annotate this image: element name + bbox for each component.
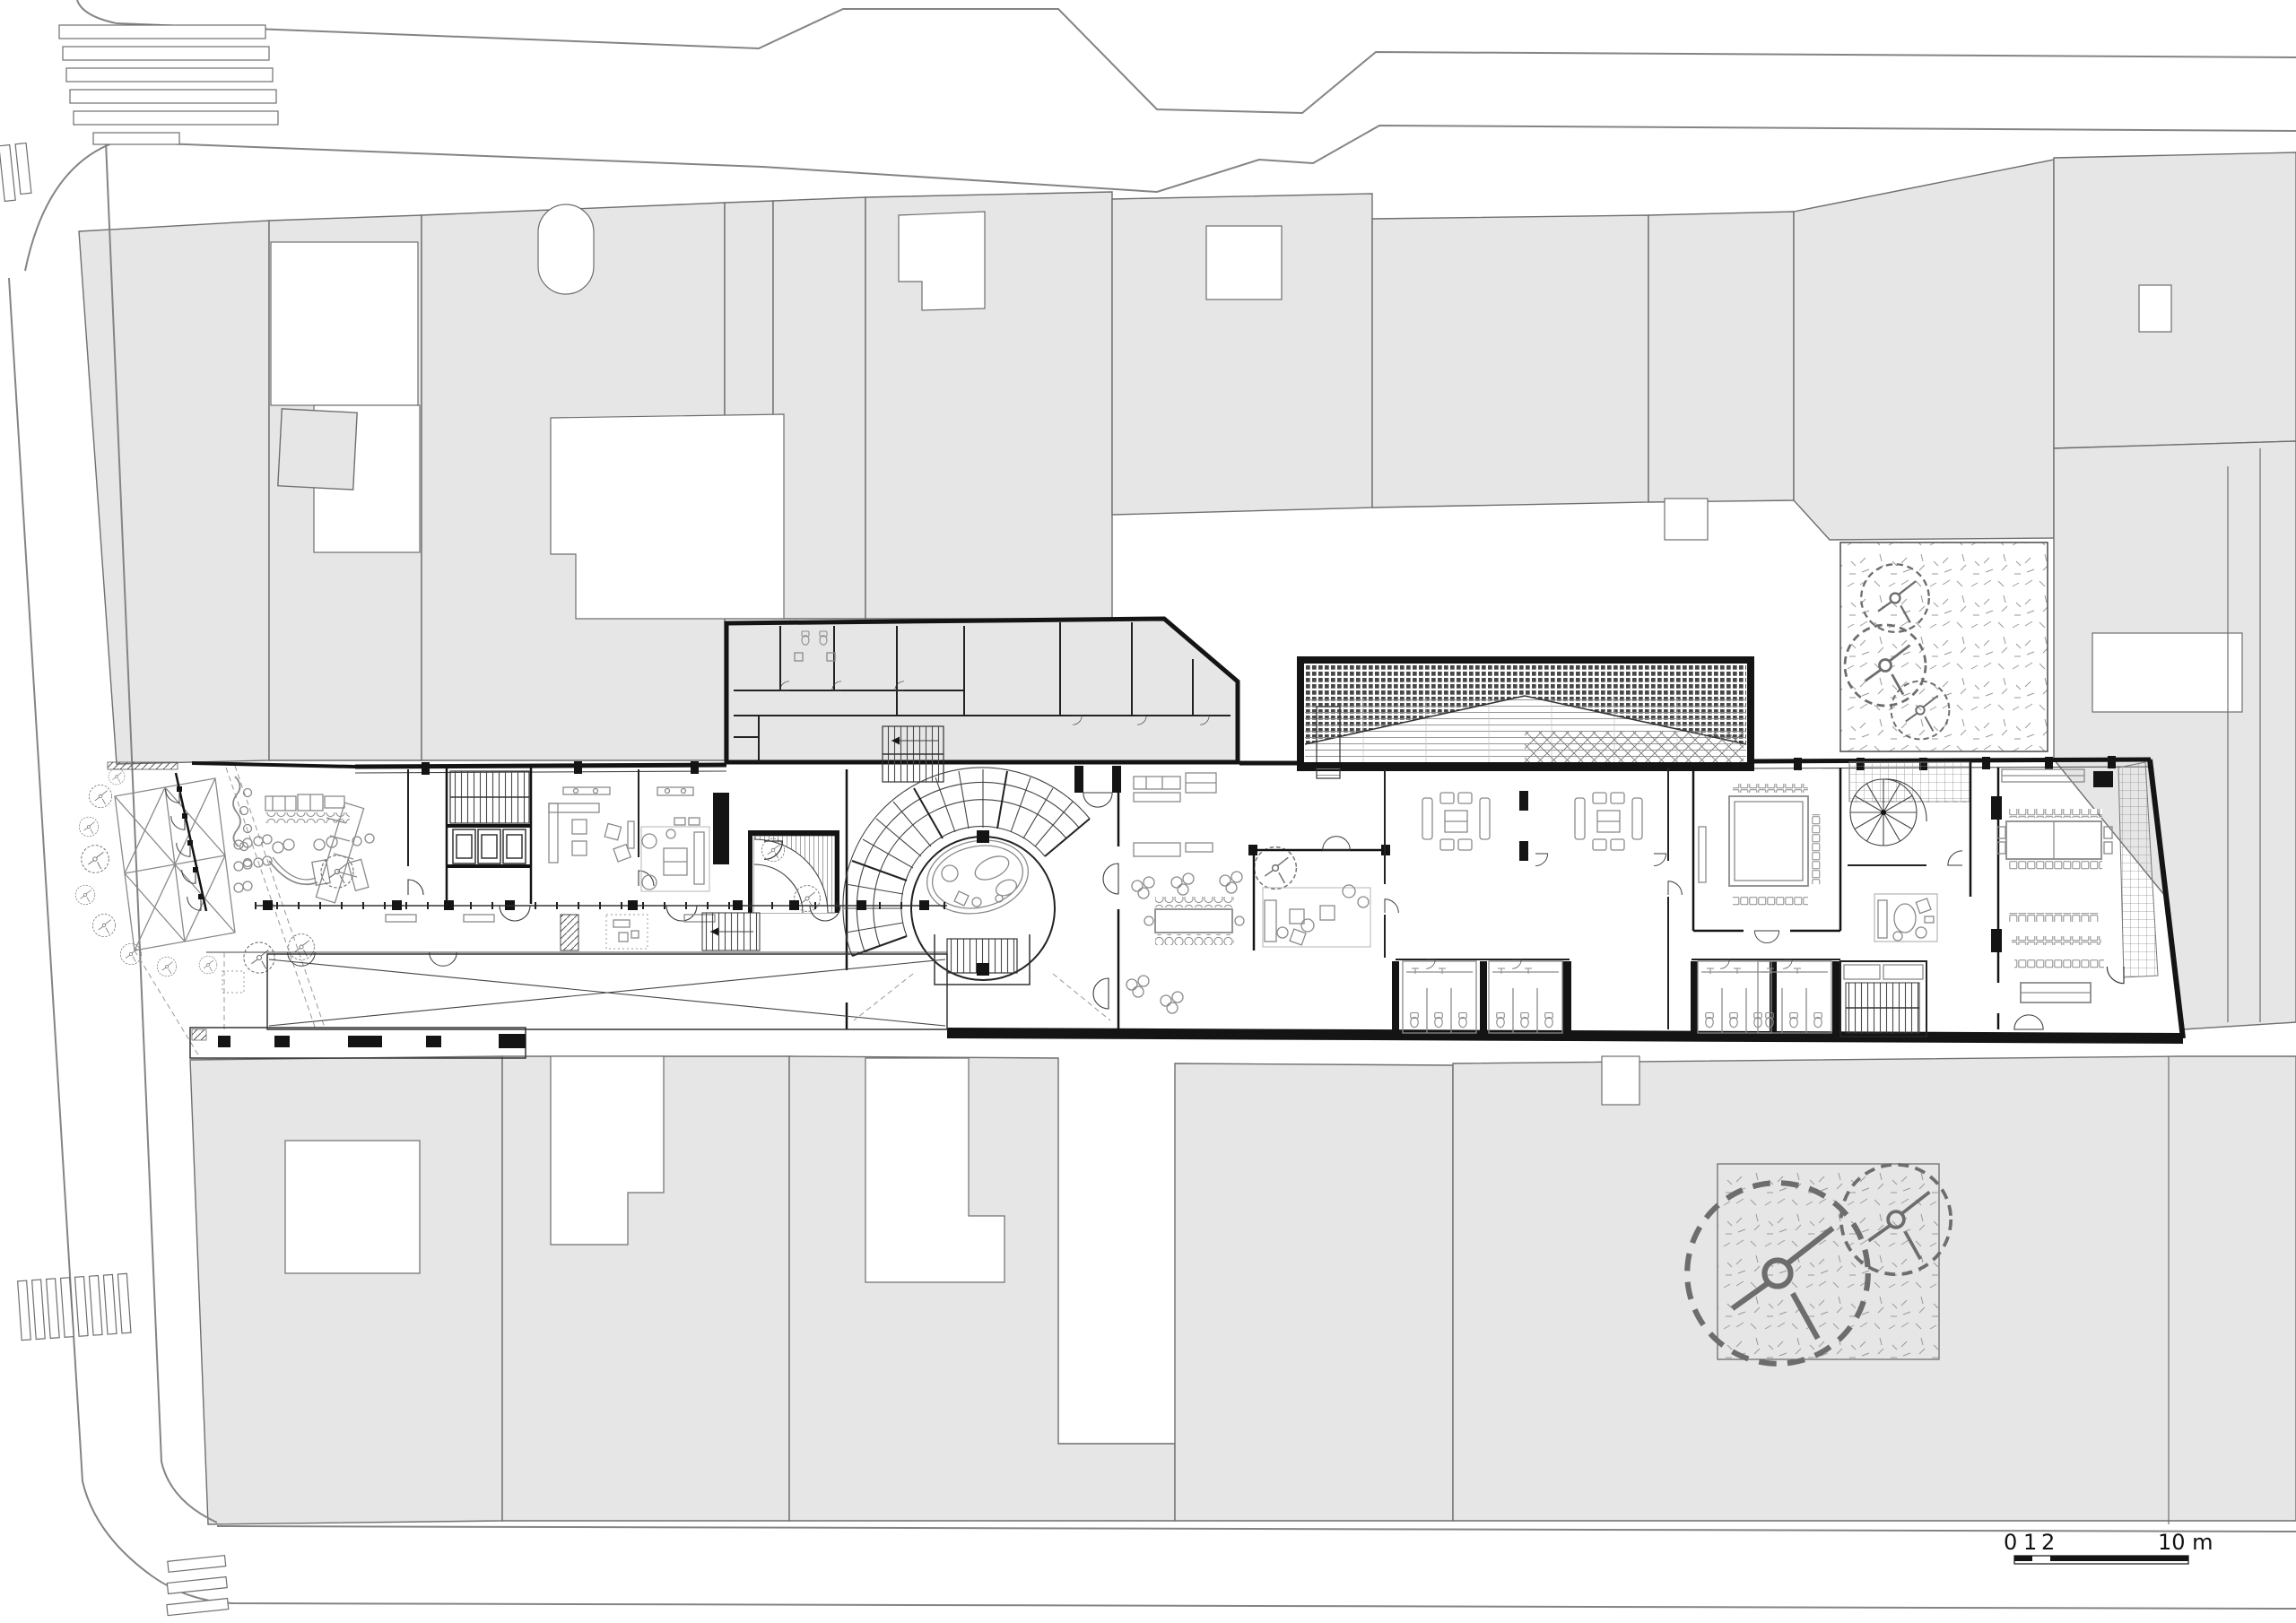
southeast-stair — [1840, 961, 1926, 1037]
spiral-stair-room — [1848, 762, 1970, 897]
gallery-stair — [702, 913, 760, 950]
annex-stair — [883, 726, 944, 782]
floor-plan-drawing: 0 1 2 10 m — [0, 0, 2296, 1623]
meeting-table — [1997, 809, 2112, 870]
scale-max-label: 10 m — [2158, 1530, 2213, 1555]
roof-courtyard — [1300, 660, 1751, 778]
north-annex — [726, 619, 1238, 782]
crosswalk-left-mid — [18, 1273, 131, 1340]
elevator-core — [447, 768, 531, 904]
scale-tick-0: 0 — [2004, 1530, 2017, 1555]
office-nook — [606, 915, 648, 949]
bar-stools — [265, 812, 350, 823]
long-table — [1144, 897, 1244, 945]
lecture-rows — [2009, 913, 2104, 968]
elevator-cars — [453, 829, 526, 864]
ramp — [222, 952, 947, 1029]
garden-northeast — [1840, 542, 2048, 751]
south-gallery — [190, 900, 947, 1058]
rotunda — [843, 766, 1121, 1029]
lounge-square — [1874, 894, 1937, 942]
scale-tick-1: 1 — [2023, 1530, 2037, 1555]
rotunda-south-stair — [935, 934, 1030, 985]
scale-bar: 0 1 2 10 m — [2004, 1530, 2213, 1564]
site-plan-sheet: 0 1 2 10 m — [0, 0, 2296, 1623]
lobby-bar — [233, 777, 374, 903]
plant-icon — [1255, 847, 1297, 890]
garden-southeast — [1687, 1164, 1951, 1364]
crosswalk-top-left — [0, 25, 278, 201]
lounge-room — [1248, 769, 1398, 958]
south-colonnade — [190, 1028, 526, 1058]
conference-room — [1991, 762, 2158, 1029]
seating-clusters — [1422, 768, 1682, 1029]
scale-bar-graphic — [2014, 1556, 2188, 1564]
dining-bar — [1126, 773, 1296, 1013]
city-blocks — [79, 152, 2296, 1524]
terrace-pergola — [75, 762, 355, 1056]
scale-tick-2: 2 — [2041, 1530, 2055, 1555]
crosswalk-bottom — [162, 1556, 230, 1616]
restrooms — [1392, 959, 1840, 1033]
shaft — [561, 915, 578, 950]
salon — [1693, 768, 1840, 943]
